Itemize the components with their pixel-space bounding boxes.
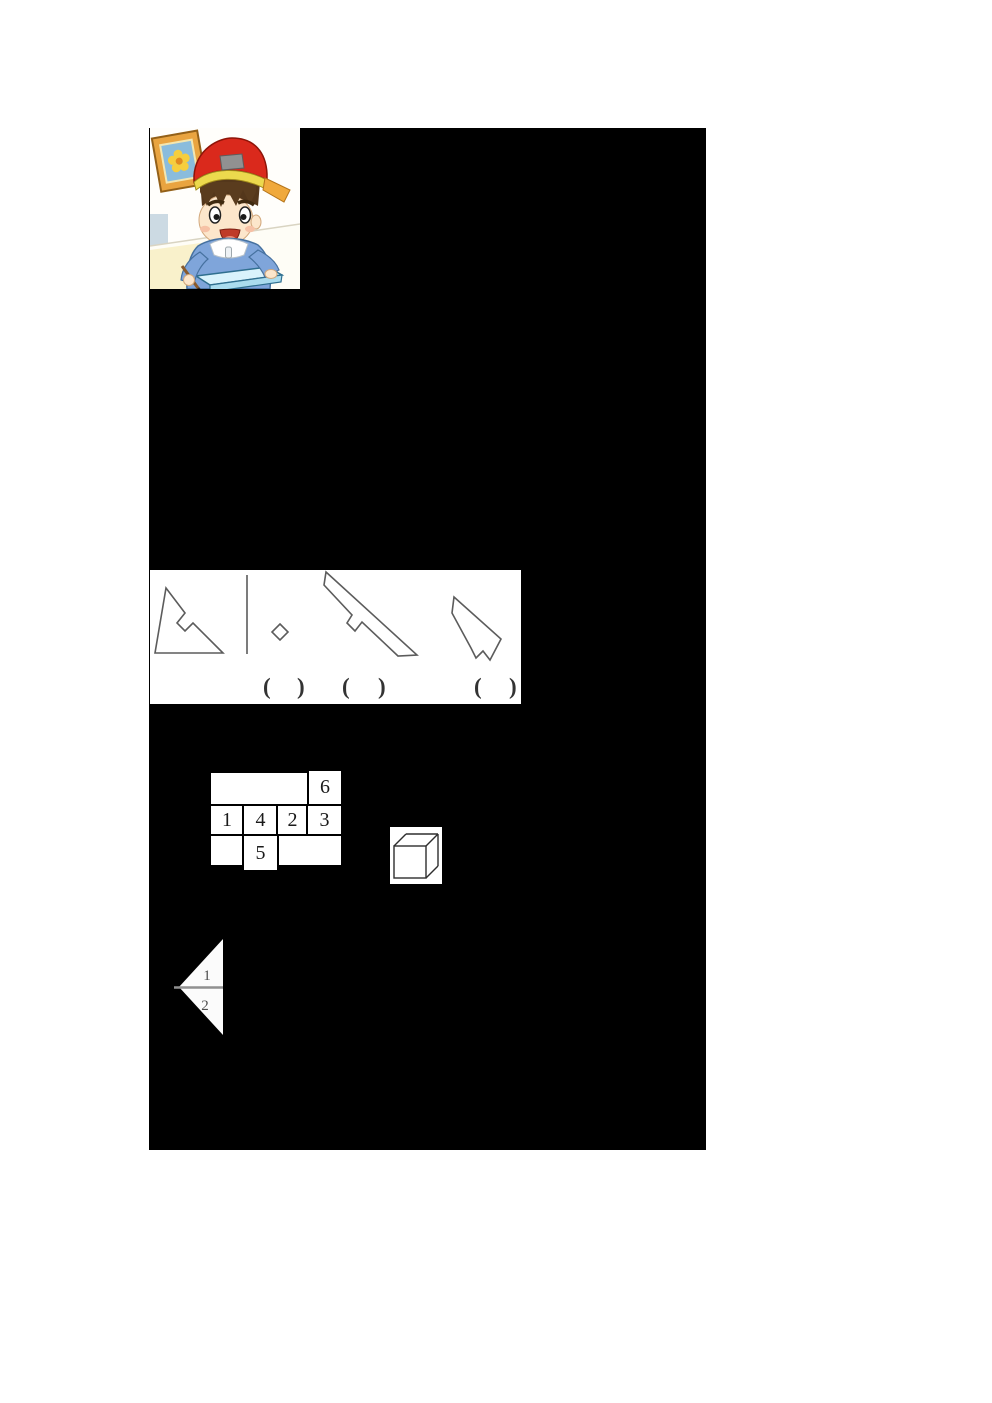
cube-front-face <box>394 846 426 878</box>
fold-triangle-svg: 1 2 <box>174 936 226 1036</box>
angle-shapes-strip: ( ) ( ) ( ) <box>150 570 521 704</box>
notched-triangle-shape <box>155 588 223 653</box>
net-cell-5: 5 <box>242 834 279 872</box>
cube-edge-tr <box>426 834 438 846</box>
answer-paren-open-2: ( <box>342 675 350 698</box>
cube-edge-br <box>426 866 438 878</box>
angle-shapes-svg <box>150 570 521 704</box>
right-hand <box>265 270 277 279</box>
hook-strip-shape <box>452 597 501 660</box>
left-hand <box>184 275 195 286</box>
answer-paren-close-3: ) <box>509 675 517 698</box>
answer-paren-open-1: ( <box>263 675 271 698</box>
fold-part-1-label: 1 <box>203 968 211 984</box>
left-pupil <box>214 214 220 220</box>
worksheet-page: ( ) ( ) ( ) 6 1 4 2 3 5 1 <box>0 0 992 1403</box>
net-cell-1: 1 <box>209 804 245 836</box>
long-strip-shape <box>324 572 417 656</box>
cube-patch <box>390 827 442 884</box>
answer-paren-open-3: ( <box>474 675 482 698</box>
fold-triangle-figure: 1 2 <box>174 936 226 1036</box>
net-blank-top <box>209 771 310 806</box>
fold-part-2-label: 2 <box>201 998 209 1014</box>
net-cell-3: 3 <box>306 804 343 836</box>
cube-line-drawing <box>390 827 442 884</box>
small-diamond-shape <box>272 624 288 640</box>
collar-clasp <box>226 247 232 258</box>
left-blush <box>200 226 210 232</box>
cap-patch <box>220 154 244 170</box>
cube-edge-tl <box>394 834 406 846</box>
answer-paren-close-1: ) <box>297 675 305 698</box>
fold-part-1 <box>179 939 223 987</box>
net-cell-6: 6 <box>307 769 343 806</box>
boy-drawing-illustration <box>150 128 300 289</box>
right-pupil <box>241 214 247 220</box>
boy-drawing-svg <box>150 128 300 289</box>
right-blush <box>245 226 255 232</box>
answer-paren-close-2: ) <box>378 675 386 698</box>
net-cell-4: 4 <box>242 804 279 836</box>
net-cell-2: 2 <box>276 804 309 836</box>
